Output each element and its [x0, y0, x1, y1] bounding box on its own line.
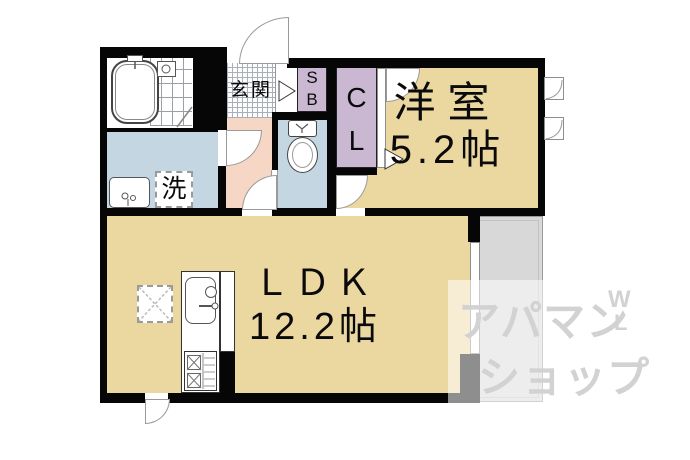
toilet-bowl-inner	[292, 142, 313, 168]
toilet-tank	[288, 120, 317, 137]
wall-left	[100, 47, 107, 403]
refrigerator-space	[137, 285, 173, 323]
wall-bath-wash-divider	[107, 128, 193, 132]
western-room-size: 5.2帖	[345, 130, 550, 170]
washroom-sink	[109, 177, 150, 208]
wall-mid-b	[272, 208, 336, 216]
ldk-exterior-door-swing	[145, 399, 170, 424]
shower-unit	[157, 61, 176, 77]
shoe-box-label-b: B	[297, 89, 327, 111]
western-room-name: 洋室	[345, 82, 550, 124]
wall-mid-a	[100, 208, 242, 216]
ldk-name: ＬＤＫ	[210, 265, 420, 301]
floor-plan: 玄関 S B C L 洋室 5.2帖 ＬＤＫ 12.2帖 洗 アパマン W L …	[0, 0, 690, 460]
entrance-door-swing	[239, 17, 289, 64]
wall-balcony-stub-top	[468, 216, 480, 242]
genkan-step-strip	[275, 63, 298, 118]
genkan-label: 玄関	[227, 81, 275, 100]
stove-burner-top	[187, 355, 201, 370]
bathtub-faucet	[127, 55, 143, 62]
laundry-label: 洗	[155, 177, 193, 202]
doorway-washroom	[218, 130, 226, 166]
shoe-box-label-s: S	[297, 67, 327, 89]
wall-washroom-right	[218, 165, 226, 208]
wall-mid-c	[365, 208, 545, 216]
wall-bottom-a	[100, 393, 145, 403]
ldk-label: ＬＤＫ 12.2帖	[210, 265, 420, 346]
shoe-box-label: S B	[297, 67, 327, 111]
wall-bottom-b	[168, 393, 480, 403]
watermark-row1: アパマン	[458, 288, 629, 349]
stove-burner-bottom	[187, 373, 201, 388]
bathtub-inner-rim	[115, 64, 155, 120]
wall-toilet-left	[272, 118, 278, 172]
doorway-ldk-western	[338, 208, 365, 216]
western-room-label: 洋室 5.2帖	[345, 82, 550, 170]
watermark-row2: ショップ	[478, 344, 650, 405]
wall-kitchen-stub	[220, 352, 235, 393]
wall-shaft	[193, 47, 227, 132]
watermark-logo-l: L	[614, 310, 628, 336]
ldk-size: 12.2帖	[210, 308, 420, 346]
watermark: アパマン W L ショップ	[448, 280, 690, 408]
wall-toilet-top	[272, 112, 336, 120]
wall-sb-cl-column	[327, 58, 336, 208]
